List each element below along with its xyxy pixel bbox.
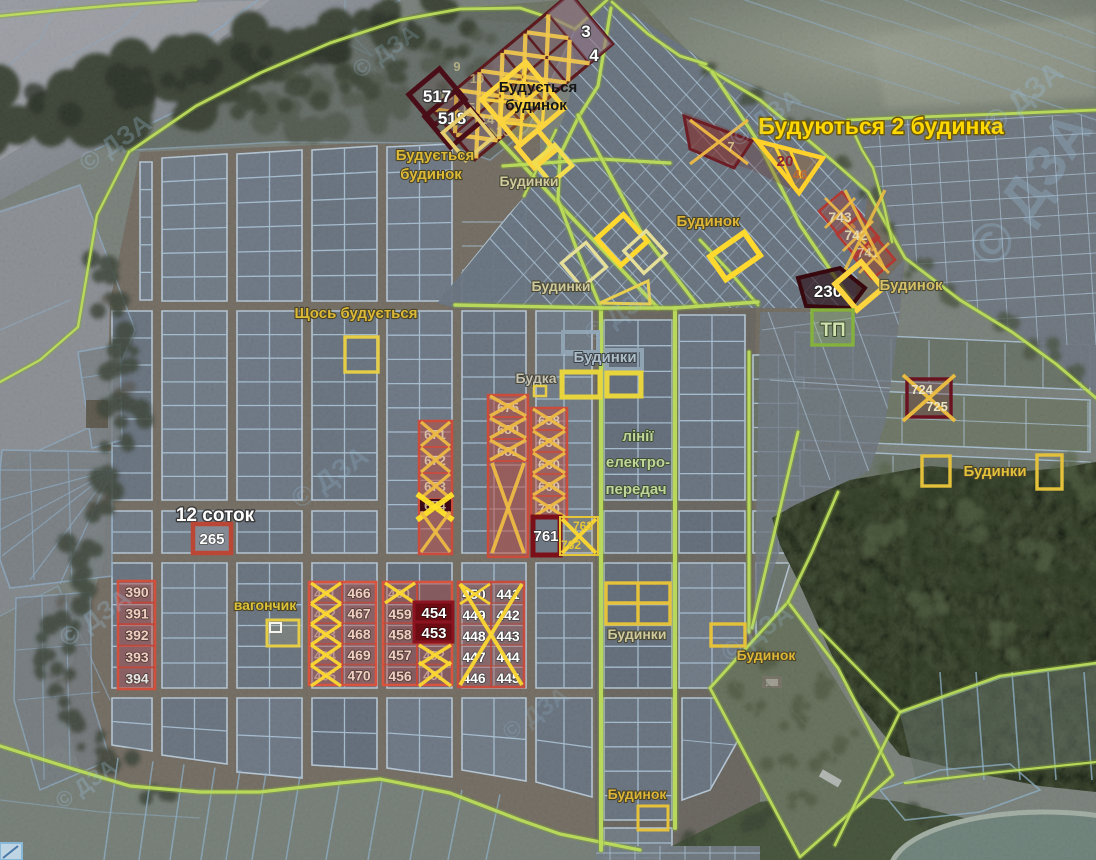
svg-text:448: 448 (462, 628, 486, 644)
svg-text:725: 725 (926, 399, 948, 414)
svg-text:763: 763 (573, 519, 593, 533)
svg-text:Будується: Будується (396, 147, 475, 164)
svg-text:Будинок: Будинок (608, 786, 668, 802)
svg-text:265: 265 (199, 531, 224, 548)
svg-text:517: 517 (423, 87, 451, 106)
svg-text:443: 443 (496, 628, 520, 644)
svg-text:Будинок: Будинок (879, 277, 943, 294)
svg-text:469: 469 (347, 647, 371, 663)
svg-text:453: 453 (421, 625, 446, 642)
svg-text:456: 456 (388, 668, 412, 684)
svg-text:761: 761 (533, 528, 558, 545)
svg-text:вагончик: вагончик (234, 597, 298, 613)
svg-text:393: 393 (125, 649, 149, 665)
svg-text:електро-: електро- (606, 454, 670, 471)
svg-text:передач: передач (605, 481, 666, 498)
svg-text:470: 470 (347, 667, 371, 683)
svg-text:Щось будується: Щось будується (294, 305, 417, 322)
svg-text:454: 454 (421, 605, 447, 622)
svg-text:Будинки: Будинки (608, 626, 667, 642)
svg-text:3: 3 (581, 22, 590, 41)
svg-text:724: 724 (911, 382, 933, 397)
svg-text:будинок: будинок (505, 97, 567, 114)
svg-text:466: 466 (347, 585, 371, 601)
svg-text:762: 762 (561, 538, 581, 552)
svg-text:будинок: будинок (400, 166, 462, 183)
svg-text:Будуються 2 будинка: Будуються 2 будинка (758, 113, 1004, 139)
svg-text:Будинок: Будинок (676, 213, 740, 230)
svg-text:458: 458 (388, 627, 412, 643)
svg-text:ТП: ТП (820, 320, 845, 341)
svg-text:лінії: лінії (622, 428, 654, 445)
svg-text:Будинки: Будинки (963, 463, 1026, 480)
svg-text:Будка: Будка (516, 370, 557, 386)
svg-text:Будинки: Будинки (500, 173, 559, 189)
svg-text:459: 459 (388, 606, 412, 622)
svg-text:468: 468 (347, 626, 371, 642)
svg-text:743: 743 (828, 209, 852, 225)
svg-text:467: 467 (347, 606, 371, 622)
svg-text:Будинки: Будинки (532, 278, 591, 294)
svg-text:Будується: Будується (499, 79, 578, 96)
svg-text:9: 9 (453, 59, 460, 74)
svg-text:392: 392 (125, 627, 149, 643)
svg-text:4: 4 (589, 46, 599, 65)
svg-text:394: 394 (125, 670, 149, 686)
svg-text:46: 46 (793, 167, 807, 182)
svg-text:Будинки: Будинки (573, 349, 636, 366)
svg-text:457: 457 (388, 647, 412, 663)
svg-text:20: 20 (777, 153, 794, 170)
svg-text:10: 10 (470, 71, 484, 86)
